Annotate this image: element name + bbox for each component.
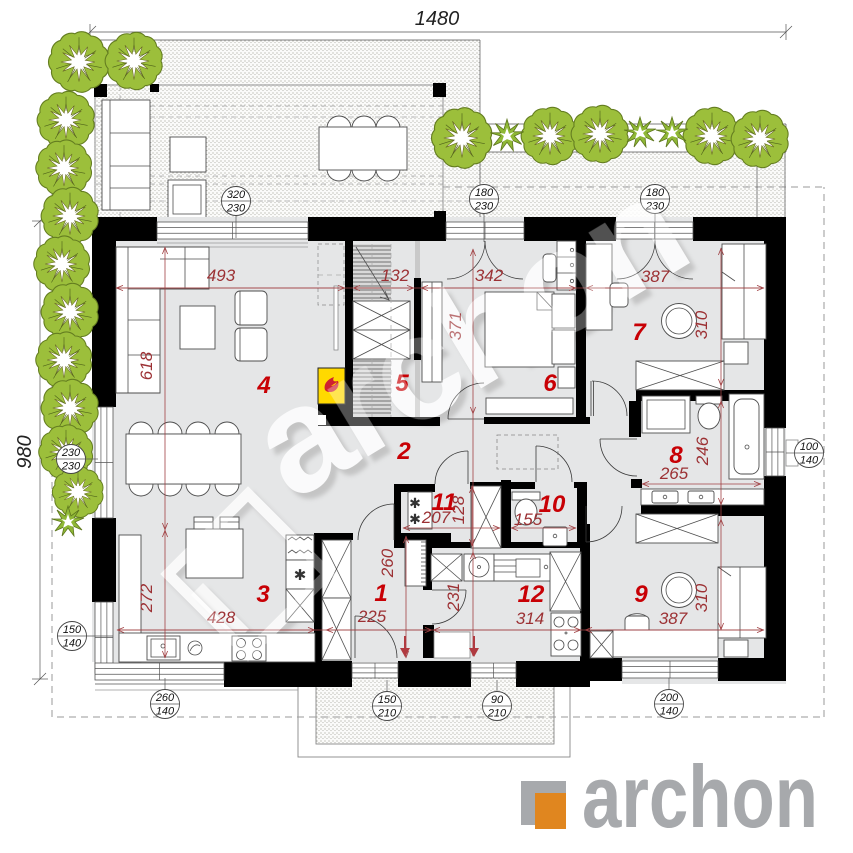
svg-text:200: 200 [659,692,679,704]
svg-text:260: 260 [155,692,175,704]
svg-text:6: 6 [543,370,557,397]
svg-text:230: 230 [226,203,246,215]
svg-text:90: 90 [491,694,504,706]
svg-text:272: 272 [137,583,156,613]
svg-text:371: 371 [446,312,465,340]
svg-text:342: 342 [475,266,504,285]
svg-text:207: 207 [421,508,451,527]
svg-text:9: 9 [634,581,648,608]
svg-text:210: 210 [377,708,397,720]
svg-text:980: 980 [14,435,36,468]
svg-text:493: 493 [207,266,236,285]
svg-text:210: 210 [487,708,507,720]
svg-text:260: 260 [378,548,397,578]
svg-text:140: 140 [156,706,175,718]
svg-text:246: 246 [693,436,712,466]
svg-text:320: 320 [227,189,246,201]
svg-text:140: 140 [660,706,679,718]
svg-text:265: 265 [659,464,689,483]
svg-text:230: 230 [474,201,494,213]
svg-text:314: 314 [516,609,544,628]
svg-text:2: 2 [396,438,411,465]
svg-text:225: 225 [357,607,387,626]
svg-text:387: 387 [641,267,670,286]
svg-text:✱: ✱ [409,511,421,527]
svg-text:230: 230 [645,201,665,213]
svg-text:387: 387 [659,609,688,628]
svg-text:428: 428 [207,608,236,627]
svg-text:618: 618 [137,351,156,380]
svg-text:5: 5 [395,370,409,397]
svg-text:140: 140 [63,638,82,650]
svg-text:100: 100 [800,441,819,453]
svg-text:4: 4 [256,372,270,399]
svg-text:✱: ✱ [409,495,421,511]
svg-text:150: 150 [378,694,397,706]
svg-text:231: 231 [444,583,463,612]
svg-text:3: 3 [256,581,270,608]
svg-text:140: 140 [800,455,819,467]
svg-text:10: 10 [539,491,566,518]
svg-text:✱: ✱ [294,567,307,584]
svg-text:1480: 1480 [415,8,460,30]
svg-text:archon: archon [582,747,818,846]
svg-text:132: 132 [381,266,410,285]
svg-text:7: 7 [632,319,647,346]
svg-text:310: 310 [692,310,711,339]
svg-text:180: 180 [646,187,665,199]
svg-text:12: 12 [518,581,545,608]
svg-text:310: 310 [692,583,711,612]
svg-text:155: 155 [514,510,543,529]
svg-text:128: 128 [449,495,468,524]
svg-text:230: 230 [61,461,81,473]
svg-text:150: 150 [63,624,82,636]
svg-text:230: 230 [61,447,81,459]
svg-text:180: 180 [475,187,494,199]
svg-text:1: 1 [374,580,387,607]
